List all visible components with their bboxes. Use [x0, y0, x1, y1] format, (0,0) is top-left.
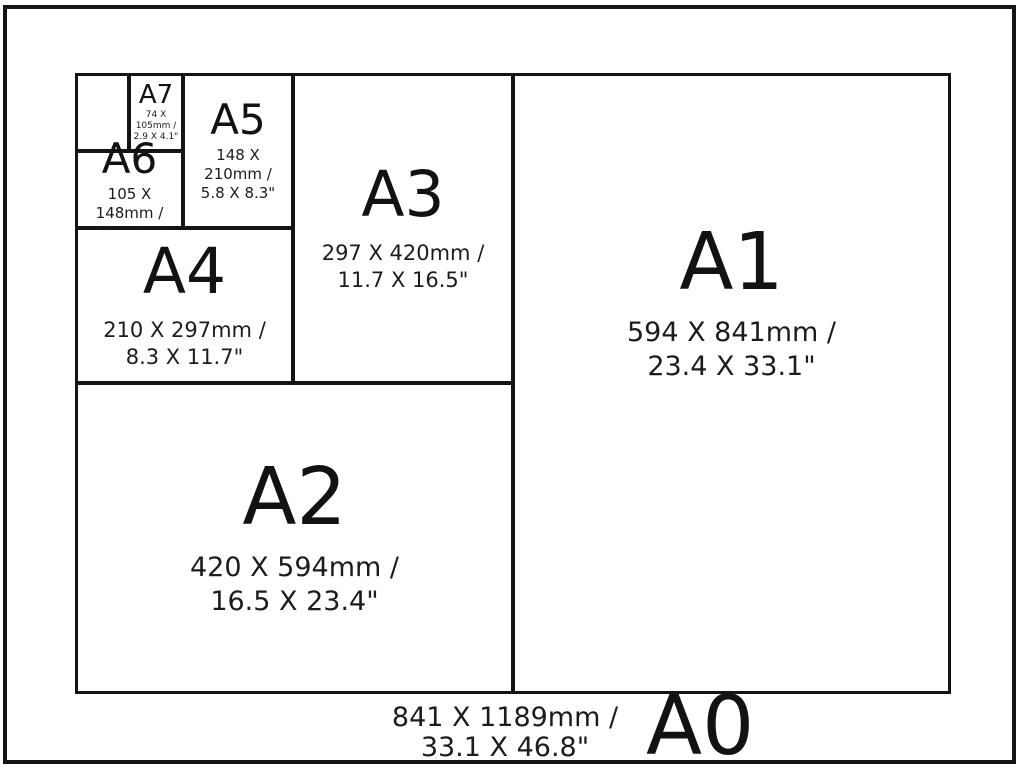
- paper-sizes-diagram: A7 74 X 105mm / 2.9 X 4.1" A5 148 X 210m…: [0, 0, 1024, 769]
- size-dimensions-a0: 841 X 1189mm / 33.1 X 46.8": [340, 703, 670, 763]
- size-label-a0: A0: [646, 686, 754, 768]
- inner-grid-outline: [75, 73, 951, 694]
- dims-inches-a0: 33.1 X 46.8": [421, 732, 589, 763]
- dims-mm-a0: 841 X 1189mm /: [392, 702, 618, 733]
